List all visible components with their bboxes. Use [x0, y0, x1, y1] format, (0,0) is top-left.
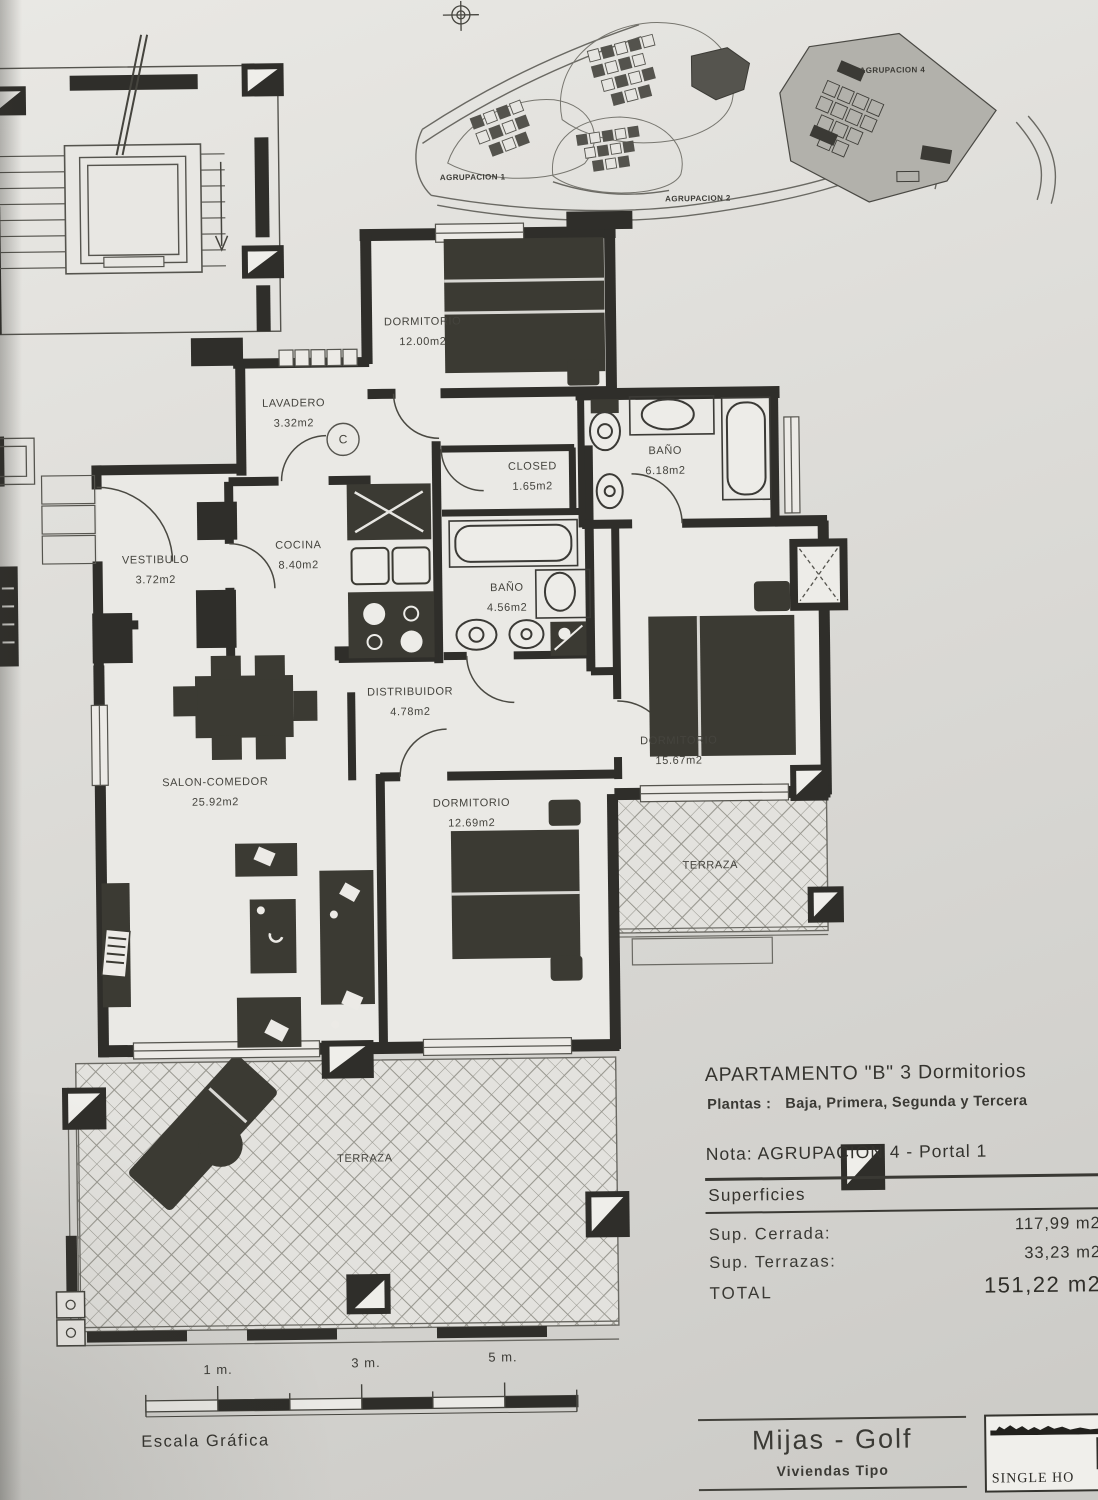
room-label-distribuidor: DISTRIBUIDOR 4.78m2: [367, 687, 453, 719]
terrace-right: [614, 795, 828, 966]
project-title: Mijas - Golf: [698, 1423, 966, 1457]
logo-skyline-icon: [990, 1420, 1098, 1436]
scanned-floorplan-sheet: DORMITORIO 12.00m2 LAVADERO 3.32m2 CLOSE…: [0, 0, 1098, 1500]
terrace-bottom: [54, 1049, 620, 1346]
room-label-vestibulo: VESTIBULO 3.72m2: [122, 555, 190, 587]
escala-grafica-caption: Escala Gráfica: [141, 1431, 270, 1452]
site-clubhouse: [691, 47, 750, 100]
room-label-salon-comedor: SALON-COMEDOR 25.92m2: [162, 777, 269, 809]
room-label-bano-2: BAÑO 4.56m2: [487, 583, 528, 614]
room-label-dormitorio-1: DORMITORIO 12.00m2: [384, 316, 462, 348]
room-label-closet: CLOSED 1.65m2: [508, 461, 557, 493]
site-cluster-1: [447, 99, 595, 179]
project-subtitle: Viviendas Tipo: [699, 1461, 967, 1480]
site-zone-agrupacion4: [779, 32, 997, 203]
scale-tick-5m: 5 m.: [488, 1349, 517, 1364]
room-label-terraza-bottom: TERRAZA: [337, 1153, 393, 1165]
sheet-content: DORMITORIO 12.00m2 LAVADERO 3.32m2 CLOSE…: [0, 0, 1098, 1500]
compass-icon: [443, 1, 479, 31]
stairwell-detail: [0, 33, 287, 335]
service-shaft: [789, 538, 848, 611]
site-plan: [414, 0, 1056, 223]
room-label-bano-principal: BAÑO 6.18m2: [645, 446, 686, 477]
room-label-lavadero: LAVADERO 3.32m2: [262, 398, 325, 430]
plan-drawing: [0, 0, 1098, 1500]
scale-tick-1m: 1 m.: [203, 1362, 232, 1377]
scale-bar: [146, 1382, 578, 1417]
c-marker-label: C: [339, 432, 348, 446]
site-label-agrupacion-2: AGRUPACION 2: [665, 194, 731, 204]
site-label-agrupacion-1: AGRUPACION 1: [440, 172, 506, 182]
site-cluster-3: [552, 116, 683, 194]
room-label-cocina: COCINA 8.40m2: [275, 540, 322, 572]
scale-tick-3m: 3 m.: [351, 1355, 380, 1370]
company-logo-box: SINGLE HO: [984, 1413, 1098, 1493]
site-label-agrupacion-4: AGRUPACION 4: [860, 65, 926, 75]
logo-text: SINGLE HO: [992, 1471, 1075, 1488]
apartment-plan: [0, 208, 887, 1347]
room-label-dormitorio-3: DORMITORIO 15.67m2: [640, 735, 718, 767]
room-label-dormitorio-2: DORMITORIO 12.69m2: [433, 798, 511, 830]
room-label-terraza-right: TERRAZA: [682, 860, 738, 872]
